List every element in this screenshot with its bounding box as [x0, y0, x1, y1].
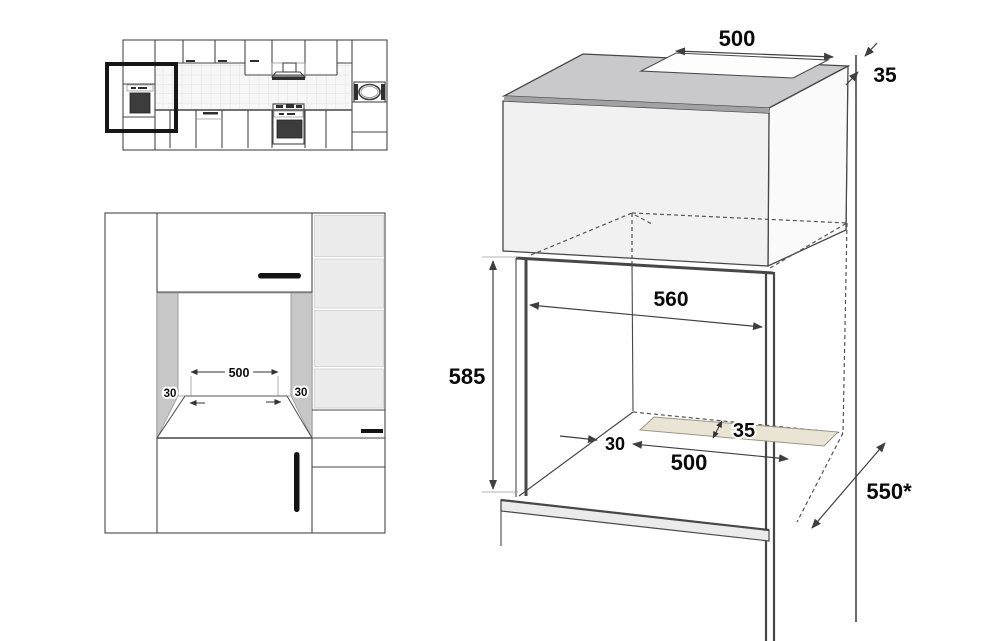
dim-label-rear-wall-gap: 35	[873, 64, 897, 87]
dim-niche-width: 560	[530, 288, 762, 327]
lower-door-handle	[294, 452, 300, 512]
dim-label-vent-front-offset: 30	[605, 434, 625, 454]
right-shelf-unit	[312, 216, 385, 468]
dim-label-top-cutout-width: 500	[719, 26, 756, 51]
dim-vent-front-offset: 30	[560, 434, 625, 454]
diagram-canvas: 500 30 30	[0, 0, 1000, 641]
niche-floor-left-edge	[519, 412, 633, 496]
cabinet-handle	[250, 60, 259, 62]
left-oven-column	[123, 40, 155, 150]
dim-label-niche-width: 560	[653, 288, 688, 311]
range-hood	[272, 63, 305, 80]
dim-label-right-clearance: 30	[295, 387, 308, 399]
cabinet-handle	[218, 60, 227, 62]
dim-label-vent-width: 500	[671, 450, 708, 475]
cabinet-handle	[186, 60, 195, 62]
dim-vent-width: 500	[633, 444, 788, 475]
dim-label-niche-depth: 550*	[866, 479, 912, 504]
kitchen-elevation-overview	[107, 40, 387, 150]
drawer-handle	[203, 112, 218, 115]
niche-floor	[157, 396, 312, 438]
drawer-handle	[361, 429, 383, 433]
backsplash-tiles	[155, 63, 245, 110]
dim-top-cutout-width: 500	[676, 26, 833, 57]
dim-label-opening-width: 500	[229, 366, 250, 380]
dim-rear-wall-gap: 35	[846, 43, 897, 87]
cabinet-perspective-view: 500 35	[449, 26, 912, 641]
base-cabinet-edge	[501, 500, 769, 546]
dim-niche-height: 585	[449, 257, 518, 492]
cabinet-front-view: 500 30 30	[105, 213, 385, 533]
oven-installation-diagram: 500 30 30	[0, 0, 1000, 641]
dim-label-niche-height: 585	[449, 364, 486, 389]
upper-cabinet-box	[503, 53, 848, 266]
dim-niche-depth: 550*	[812, 443, 912, 528]
niche-back-left-corner	[632, 261, 633, 411]
dim-label-vent-depth: 35	[733, 420, 755, 442]
upper-door-handle	[258, 273, 301, 279]
oven-door	[130, 93, 150, 113]
dim-opening-width: 500	[191, 366, 278, 396]
dim-label-left-clearance: 30	[164, 388, 177, 400]
niche-back-wall	[178, 293, 291, 396]
